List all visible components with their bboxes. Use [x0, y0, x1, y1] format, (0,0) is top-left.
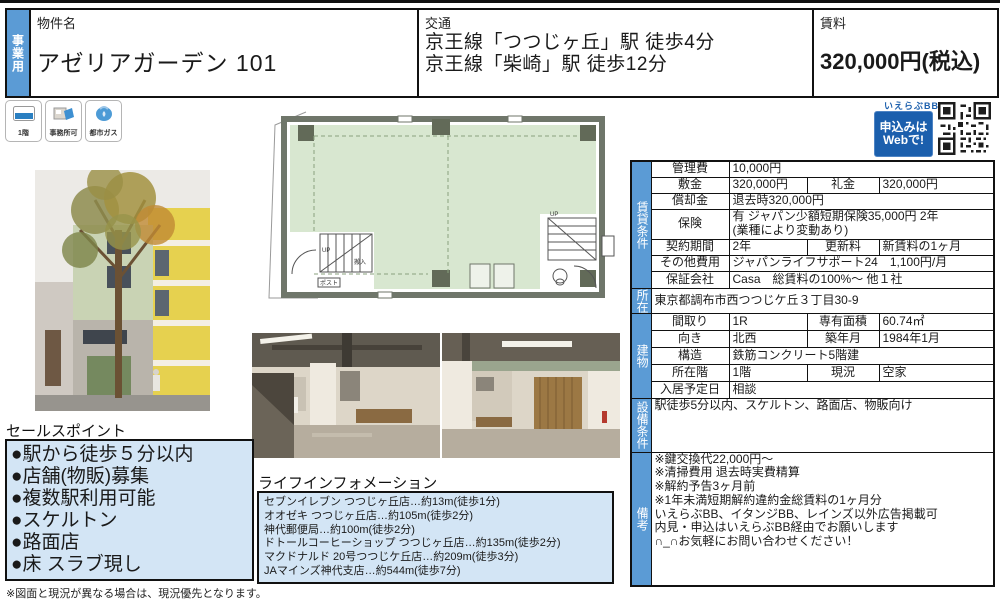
remarks-line: いえらぶBB、イタンジBB、レインズ以外広告掲載可: [655, 508, 991, 522]
sales-point-item: ●スケルトン: [11, 510, 248, 532]
structure-label: 構造: [651, 347, 729, 364]
other-fees-label: その他費用: [651, 255, 729, 271]
direction-label: 向き: [651, 330, 729, 347]
layout-value: 1R: [729, 313, 807, 330]
remarks-line: ※1年未満短期解約違約金総賃料の1ヶ月分: [655, 494, 991, 508]
section-building: 建物: [631, 313, 651, 398]
feature-badges: 1階 事務所可 都市ガス: [5, 100, 122, 142]
sales-point-item: ●床 スラブ現し: [11, 554, 248, 576]
section-location: 所在: [631, 288, 651, 313]
exterior-photo: [35, 170, 210, 411]
key-money-label: 礼金: [807, 177, 879, 193]
insurance-value: 有 ジャパン少額短期保険35,000円 2年 (業種により変動あり): [729, 209, 994, 239]
management-fee-label: 管理費: [651, 161, 729, 177]
remarks-line: ※解約予告3ヶ月前: [655, 480, 991, 494]
life-info-item: 神代郵便局…約100m(徒歩2分): [264, 524, 607, 538]
remarks-line: ∩_∩お気軽にお問い合わせください！: [655, 535, 991, 549]
sales-point-item: ●駅から徒歩５分以内: [11, 444, 248, 466]
remarks-value: ※鍵交換代22,000円〜 ※清掃費用 退去時実費精算 ※解約予告3ヶ月前 ※1…: [651, 452, 994, 586]
renewal-fee-value: 新賃料の1ヶ月: [879, 239, 994, 255]
apply-button-line2: Webで!: [883, 134, 924, 147]
gas-icon: [92, 105, 116, 127]
plan-label-up-left: UP: [322, 248, 330, 254]
floor-icon: [12, 105, 36, 127]
insurance-label: 保険: [651, 209, 729, 239]
office-icon: [52, 105, 76, 127]
contract-period-value: 2年: [729, 239, 807, 255]
area-label: 専有面積: [807, 313, 879, 330]
sales-point-item: ●路面店: [11, 532, 248, 554]
sales-point-item: ●複数駅利用可能: [11, 488, 248, 510]
guarantor-label: 保証会社: [651, 271, 729, 288]
floor-label: 所在階: [651, 364, 729, 381]
section-equipment: 設備条件: [631, 398, 651, 452]
life-info-item: オオゼキ つつじヶ丘店…約105m(徒歩2分): [264, 510, 607, 524]
renewal-fee-label: 更新料: [807, 239, 879, 255]
header: 事業用 物件名 アゼリアガーデン 101 交通 京王線「つつじヶ丘」駅 徒歩4分…: [5, 8, 999, 98]
transport-line: 京王線「柴崎」駅 徒歩12分: [425, 54, 806, 76]
address-value: 東京都調布市西つつじケ丘３丁目30-9: [651, 288, 994, 313]
move-in-label: 入居予定日: [651, 381, 729, 398]
badge-label: 都市ガス: [90, 128, 118, 138]
property-name-cell: 物件名 アゼリアガーデン 101: [29, 10, 417, 96]
built-value: 1984年1月: [879, 330, 994, 347]
badge-first-floor: 1階: [5, 100, 42, 142]
rent-label: 賃料: [820, 13, 991, 32]
floor-value: 1階: [729, 364, 807, 381]
rent-value: 320,000円(税込): [820, 44, 991, 76]
insurance-line2: (業種により変動あり): [733, 224, 991, 238]
footer-note: ※図面と現況が異なる場合は、現況優先となります。: [6, 585, 267, 599]
interior-photo-left: [252, 333, 440, 458]
life-info-item: JAマインズ神代支店…約544m(徒歩7分): [264, 565, 607, 579]
other-fees-value: ジャパンライフサポート24 1,100円/月: [729, 255, 994, 271]
structure-value: 鉄筋コンクリート5階建: [729, 347, 994, 364]
apply-web-button[interactable]: 申込みは Webで!: [874, 111, 933, 157]
amortization-value: 退去時320,000円: [729, 193, 994, 209]
badge-city-gas: 都市ガス: [85, 100, 122, 142]
built-label: 築年月: [807, 330, 879, 347]
plan-label-delivery: 搬入: [354, 258, 366, 266]
area-value: 60.74㎡: [879, 313, 994, 330]
equipment-value: 駅徒歩5分以内、スケルトン、路面店、物販向け: [651, 398, 994, 452]
deposit-label: 敷金: [651, 177, 729, 193]
transport-cell: 交通 京王線「つつじヶ丘」駅 徒歩4分 京王線「柴崎」駅 徒歩12分: [417, 10, 812, 96]
section-rental-conditions: 賃貸条件: [631, 161, 651, 288]
status-value: 空家: [879, 364, 994, 381]
key-money-value: 320,000円: [879, 177, 994, 193]
deposit-value: 320,000円: [729, 177, 807, 193]
plan-label-post: ポスト: [320, 279, 338, 287]
qr-code: [936, 102, 993, 160]
life-info-item: セブンイレブン つつじヶ丘店…約13m(徒歩1分): [264, 496, 607, 510]
life-info-box: セブンイレブン つつじヶ丘店…約13m(徒歩1分) オオゼキ つつじヶ丘店…約1…: [257, 491, 614, 584]
top-rule: [0, 0, 1000, 3]
badge-office-ok: 事務所可: [45, 100, 82, 142]
transport-line: 京王線「つつじヶ丘」駅 徒歩4分: [425, 32, 806, 54]
property-name-label: 物件名: [37, 13, 411, 32]
management-fee-value: 10,000円: [729, 161, 994, 177]
plan-label-up-right: UP: [550, 212, 558, 218]
life-info-item: ドトールコーヒーショップ つつじヶ丘店…約135m(徒歩2分): [264, 537, 607, 551]
transport-label: 交通: [425, 13, 806, 32]
status-label: 現況: [807, 364, 879, 381]
section-remarks: 備考: [631, 452, 651, 586]
insurance-line1: 有 ジャパン少額短期保険35,000円 2年: [733, 210, 991, 224]
sales-points-box: ●駅から徒歩５分以内 ●店舗(物販)募集 ●複数駅利用可能 ●スケルトン ●路面…: [5, 439, 254, 581]
badge-label: 事務所可: [50, 128, 78, 138]
move-in-value: 相談: [729, 381, 994, 398]
layout-label: 間取り: [651, 313, 729, 330]
floor-plan: UP UP 搬入 ポスト: [258, 106, 620, 311]
property-name: アゼリアガーデン 101: [37, 44, 411, 78]
life-info-item: マクドナルド 20号つつじケ丘店…約209m(徒歩3分): [264, 551, 607, 565]
category-tab: 事業用: [7, 10, 29, 96]
property-flyer: 事業用 物件名 アゼリアガーデン 101 交通 京王線「つつじヶ丘」駅 徒歩4分…: [0, 0, 1000, 599]
amortization-label: 償却金: [651, 193, 729, 209]
sales-points-title: セールスポイント: [6, 420, 126, 441]
direction-value: 北西: [729, 330, 807, 347]
interior-photo-right: [442, 333, 620, 458]
details-table: 賃貸条件 管理費 10,000円 敷金 320,000円 礼金 320,000円…: [630, 160, 995, 587]
badge-label: 1階: [18, 128, 29, 138]
sales-point-item: ●店舗(物販)募集: [11, 466, 248, 488]
rent-cell: 賃料 320,000円(税込): [812, 10, 997, 96]
guarantor-value: Casa 総賃料の100%〜 他１社: [729, 271, 994, 288]
contract-period-label: 契約期間: [651, 239, 729, 255]
